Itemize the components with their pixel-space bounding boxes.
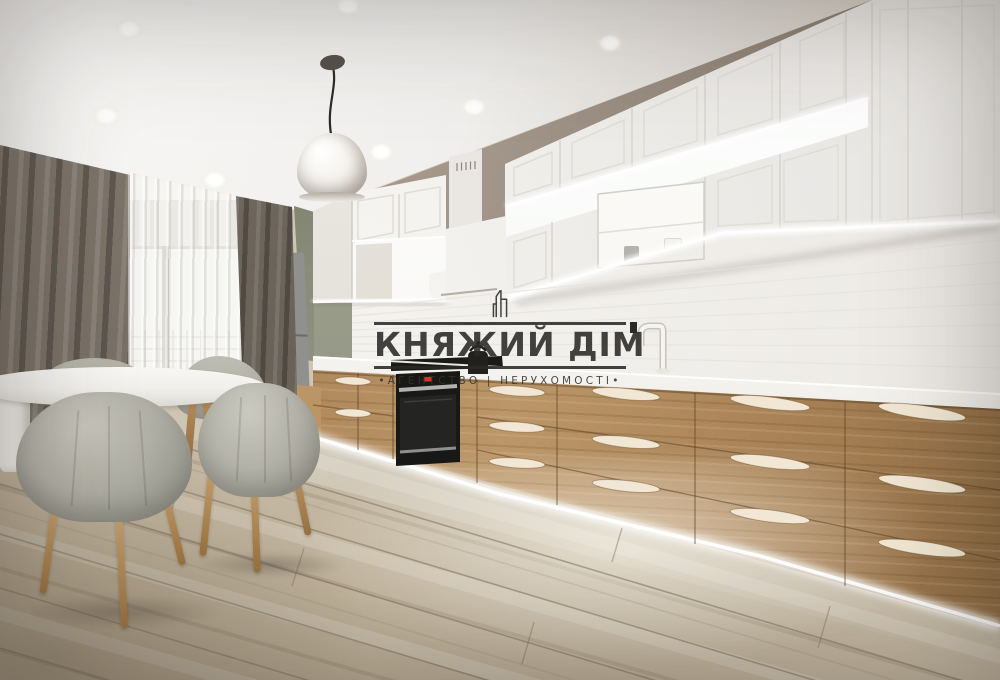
chair-seam [71, 410, 80, 506]
chair-seam [139, 410, 148, 506]
chair-seam [236, 397, 242, 481]
agency-subtitle: •АГЕНТСТВО | НЕРУХОМОСТІ• [374, 375, 626, 387]
spotlight [90, 104, 122, 128]
buildings-logo-icon [481, 288, 519, 318]
spotlight [594, 31, 626, 55]
spotlight [199, 168, 231, 192]
spotlight [365, 140, 397, 164]
chair-front-right [198, 383, 320, 497]
spotlight [458, 95, 490, 119]
agency-title: КНЯЖИЙ ДІМ [374, 328, 626, 363]
chair-seam [108, 406, 110, 510]
spotlight [113, 17, 145, 41]
watermark-rule-bottom [374, 366, 626, 369]
chair-front-left [16, 392, 192, 522]
chair-seam [286, 397, 292, 481]
watermark: КНЯЖИЙ ДІМ •АГЕНТСТВО | НЕРУХОМОСТІ• [374, 288, 626, 387]
chair-seam [264, 395, 266, 483]
pendant-rim [299, 192, 365, 202]
kitchen-photo: КНЯЖИЙ ДІМ •АГЕНТСТВО | НЕРУХОМОСТІ• [0, 0, 1000, 680]
chair-shadow [196, 552, 346, 578]
